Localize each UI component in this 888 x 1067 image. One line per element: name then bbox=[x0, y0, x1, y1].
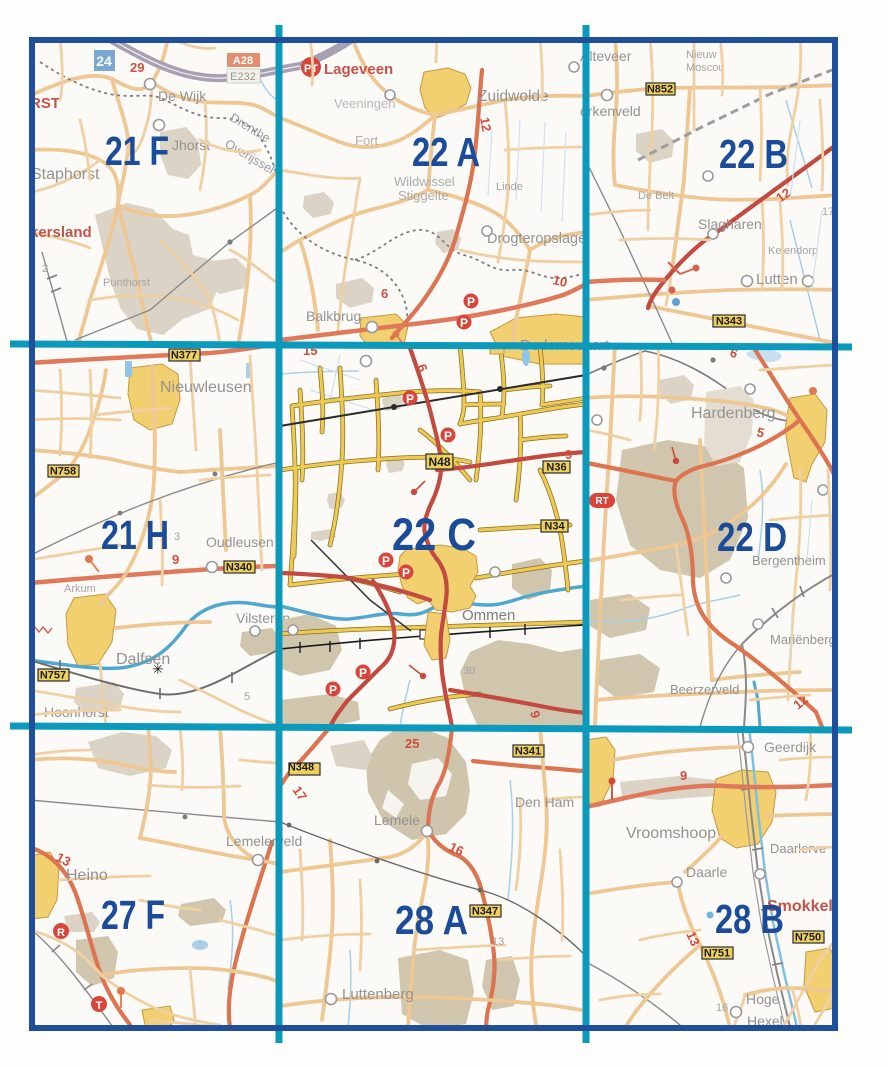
svg-text:Arkum: Arkum bbox=[64, 583, 96, 595]
svg-text:N758: N758 bbox=[50, 466, 76, 478]
svg-text:N348: N348 bbox=[288, 762, 314, 774]
svg-text:Mariënberg: Mariënberg bbox=[770, 632, 836, 647]
svg-text:24: 24 bbox=[96, 53, 112, 69]
svg-text:Oudleusen: Oudleusen bbox=[206, 534, 274, 550]
svg-text:Beerzerveld: Beerzerveld bbox=[670, 682, 739, 697]
svg-text:N377: N377 bbox=[171, 350, 197, 362]
svg-text:Vroomshoop: Vroomshoop bbox=[626, 825, 716, 842]
svg-text:Hardenberg: Hardenberg bbox=[691, 405, 776, 422]
svg-text:29: 29 bbox=[130, 60, 144, 75]
svg-text:Hoge: Hoge bbox=[746, 991, 780, 1007]
svg-text:Jhorst: Jhorst bbox=[172, 137, 210, 153]
svg-text:N751: N751 bbox=[704, 948, 730, 960]
svg-text:N852: N852 bbox=[647, 84, 673, 96]
svg-text:De Wijk: De Wijk bbox=[158, 88, 207, 104]
svg-text:Balkbrug: Balkbrug bbox=[306, 308, 361, 324]
svg-text:25: 25 bbox=[405, 736, 419, 751]
svg-text:Slagharen: Slagharen bbox=[698, 216, 762, 232]
svg-text:13: 13 bbox=[492, 936, 504, 948]
svg-text:Den Ham: Den Ham bbox=[515, 794, 574, 810]
svg-text:9: 9 bbox=[680, 768, 687, 783]
svg-text:27 F: 27 F bbox=[101, 892, 165, 938]
svg-text:P: P bbox=[460, 316, 468, 330]
svg-text:Lageveen: Lageveen bbox=[324, 61, 393, 78]
svg-text:N750: N750 bbox=[795, 932, 821, 944]
svg-text:P: P bbox=[444, 429, 452, 443]
svg-text:Lutten: Lutten bbox=[756, 271, 798, 288]
svg-text:21 F: 21 F bbox=[105, 128, 169, 174]
svg-text:Geerdijk: Geerdijk bbox=[764, 739, 817, 755]
svg-text:Linde: Linde bbox=[496, 181, 523, 193]
svg-text:N340: N340 bbox=[226, 562, 252, 574]
svg-text:22 B: 22 B bbox=[719, 131, 788, 177]
svg-text:9: 9 bbox=[565, 447, 572, 462]
svg-text:Stiggelte: Stiggelte bbox=[398, 188, 449, 203]
svg-text:Heino: Heino bbox=[66, 867, 108, 884]
svg-text:Fort: Fort bbox=[355, 133, 379, 148]
svg-text:Ommen: Ommen bbox=[462, 607, 515, 624]
svg-text:3: 3 bbox=[174, 531, 180, 543]
svg-text:E232: E232 bbox=[230, 71, 256, 83]
svg-text:2: 2 bbox=[42, 263, 48, 275]
svg-text:N36: N36 bbox=[546, 462, 566, 474]
svg-text:Dalfsen: Dalfsen bbox=[116, 651, 170, 668]
svg-text:22 D: 22 D bbox=[717, 514, 787, 560]
svg-text:De Belt: De Belt bbox=[638, 190, 674, 202]
svg-text:28 B: 28 B bbox=[715, 896, 784, 942]
svg-text:N341: N341 bbox=[515, 746, 541, 758]
svg-text:21 H: 21 H bbox=[101, 512, 169, 558]
svg-text:P: P bbox=[382, 554, 390, 568]
svg-text:Lemelerveld: Lemelerveld bbox=[226, 833, 302, 849]
svg-text:P: P bbox=[329, 683, 337, 697]
svg-text:5: 5 bbox=[244, 691, 250, 703]
svg-text:N347: N347 bbox=[472, 906, 498, 918]
svg-text:16: 16 bbox=[716, 1002, 728, 1014]
svg-text:P: P bbox=[406, 392, 414, 406]
svg-text:Drogteropslage: Drogteropslage bbox=[487, 231, 586, 247]
svg-text:Nieuwleusen: Nieuwleusen bbox=[160, 379, 252, 396]
svg-text:9: 9 bbox=[172, 552, 179, 567]
svg-text:N757: N757 bbox=[40, 670, 66, 682]
svg-text:P: P bbox=[402, 566, 410, 580]
svg-text:Daarle: Daarle bbox=[686, 864, 727, 880]
svg-text:kersland: kersland bbox=[30, 224, 92, 241]
svg-text:R: R bbox=[57, 927, 65, 939]
svg-text:Zuidwolde: Zuidwolde bbox=[478, 88, 549, 105]
svg-text:22 C: 22 C bbox=[392, 509, 476, 560]
svg-text:P: P bbox=[359, 666, 367, 680]
svg-text:10: 10 bbox=[551, 272, 568, 290]
svg-text:Punthorst: Punthorst bbox=[103, 277, 150, 289]
svg-text:Nieuw: Nieuw bbox=[686, 49, 717, 61]
svg-text:Wildwissel: Wildwissel bbox=[394, 174, 455, 189]
svg-text:Moscou: Moscou bbox=[686, 62, 725, 74]
svg-text:6: 6 bbox=[381, 286, 388, 301]
svg-text:P: P bbox=[467, 295, 475, 309]
svg-text:Keiendorp: Keiendorp bbox=[768, 245, 818, 257]
svg-text:N34: N34 bbox=[544, 521, 565, 533]
svg-text:A28: A28 bbox=[233, 55, 253, 67]
svg-text:30: 30 bbox=[463, 665, 475, 677]
svg-text:T: T bbox=[96, 1000, 103, 1012]
svg-text:N48: N48 bbox=[428, 455, 450, 469]
svg-text:28 A: 28 A bbox=[395, 897, 468, 943]
svg-text:22 A: 22 A bbox=[412, 129, 480, 175]
svg-text:RT: RT bbox=[595, 496, 608, 507]
svg-text:Luttenberg: Luttenberg bbox=[342, 986, 414, 1003]
svg-text:N343: N343 bbox=[716, 316, 742, 328]
svg-text:Lemele: Lemele bbox=[374, 812, 420, 828]
